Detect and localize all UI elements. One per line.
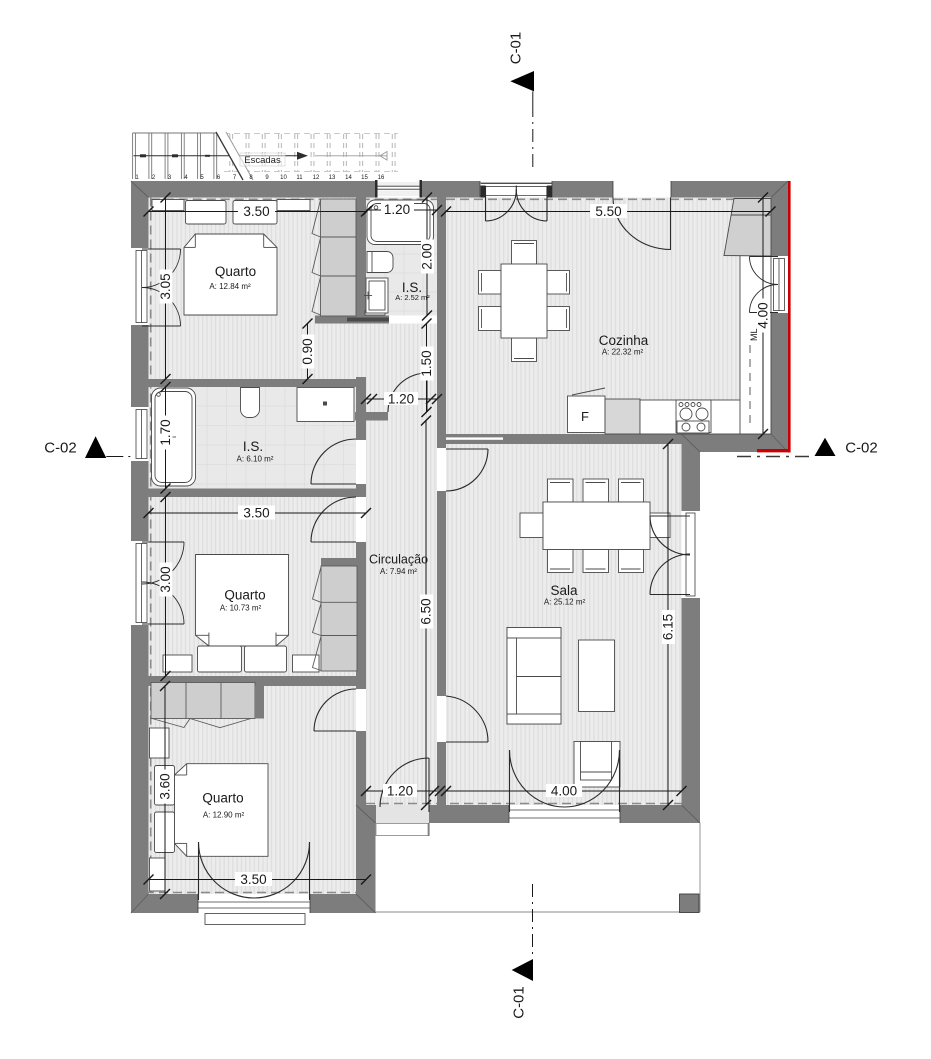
svg-text:C-02: C-02 bbox=[845, 440, 878, 457]
svg-text:3.60: 3.60 bbox=[158, 773, 173, 799]
svg-text:4.00: 4.00 bbox=[551, 784, 577, 799]
svg-text:3.00: 3.00 bbox=[158, 566, 173, 592]
svg-text:15: 15 bbox=[361, 175, 368, 181]
svg-text:Quarto: Quarto bbox=[224, 588, 265, 603]
svg-text:I.S.: I.S. bbox=[243, 439, 263, 454]
svg-text:5.50: 5.50 bbox=[595, 204, 621, 219]
svg-text:13: 13 bbox=[329, 175, 336, 181]
svg-text:1.20: 1.20 bbox=[384, 202, 410, 217]
svg-text:Cozinha: Cozinha bbox=[599, 333, 649, 348]
svg-text:F: F bbox=[581, 409, 589, 424]
svg-text:Quarto: Quarto bbox=[215, 264, 256, 279]
svg-text:10: 10 bbox=[280, 175, 287, 181]
svg-text:12: 12 bbox=[313, 175, 320, 181]
svg-text:C-01: C-01 bbox=[508, 32, 525, 65]
svg-text:C-02: C-02 bbox=[44, 440, 77, 457]
svg-text:3.50: 3.50 bbox=[243, 204, 269, 219]
svg-text:1.20: 1.20 bbox=[388, 392, 414, 407]
svg-text:14: 14 bbox=[345, 175, 352, 181]
svg-text:Quarto: Quarto bbox=[202, 791, 243, 806]
svg-text:3.05: 3.05 bbox=[158, 273, 173, 299]
svg-text:1.70: 1.70 bbox=[158, 419, 173, 445]
svg-text:Circulação: Circulação bbox=[369, 553, 428, 567]
svg-text:A: 6.10 m²: A: 6.10 m² bbox=[237, 455, 274, 464]
svg-text:4.00: 4.00 bbox=[756, 302, 771, 328]
svg-text:Escadas: Escadas bbox=[244, 155, 281, 166]
svg-text:6.50: 6.50 bbox=[419, 598, 434, 624]
svg-text:0.90: 0.90 bbox=[300, 338, 315, 364]
svg-text:3.50: 3.50 bbox=[240, 872, 266, 887]
svg-text:A: 7.94 m²: A: 7.94 m² bbox=[380, 567, 417, 576]
svg-text:A: 22.32 m²: A: 22.32 m² bbox=[602, 348, 644, 357]
svg-text:1.20: 1.20 bbox=[387, 784, 413, 799]
svg-text:A: 12.90 m²: A: 12.90 m² bbox=[203, 811, 245, 820]
svg-text:3.50: 3.50 bbox=[243, 506, 269, 521]
svg-text:1.50: 1.50 bbox=[419, 350, 434, 376]
svg-text:6.15: 6.15 bbox=[661, 614, 676, 640]
svg-text:A: 10.73 m²: A: 10.73 m² bbox=[220, 604, 262, 613]
svg-text:2.00: 2.00 bbox=[420, 243, 435, 269]
svg-text:16: 16 bbox=[378, 175, 385, 181]
svg-text:Sala: Sala bbox=[550, 583, 578, 598]
svg-text:A: 2.52 m²: A: 2.52 m² bbox=[395, 293, 430, 302]
svg-text:A: 25.12 m²: A: 25.12 m² bbox=[544, 598, 586, 607]
svg-text:11: 11 bbox=[296, 175, 303, 181]
svg-text:A: 12.84 m²: A: 12.84 m² bbox=[209, 282, 251, 291]
svg-text:C-01: C-01 bbox=[511, 986, 528, 1019]
